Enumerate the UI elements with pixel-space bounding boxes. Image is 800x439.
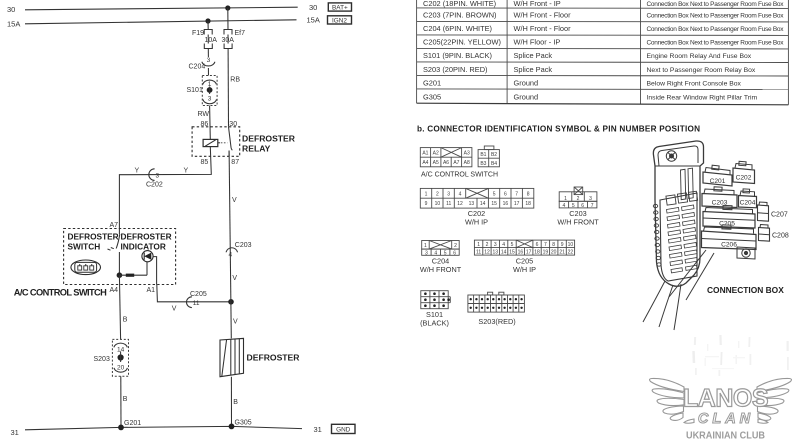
- svg-text:A5: A5: [433, 160, 439, 166]
- svg-text:87: 87: [231, 159, 239, 166]
- svg-text:4: 4: [228, 252, 232, 259]
- svg-text:A4: A4: [422, 160, 428, 166]
- svg-text:Ground: Ground: [514, 78, 539, 87]
- svg-text:6: 6: [581, 203, 584, 209]
- svg-text:31: 31: [314, 425, 322, 434]
- svg-text:4: 4: [563, 203, 566, 209]
- svg-text:2: 2: [577, 196, 580, 202]
- svg-text:13: 13: [469, 201, 475, 207]
- svg-text:S203(RED): S203(RED): [478, 317, 515, 326]
- svg-text:SWITCH: SWITCH: [68, 242, 101, 252]
- svg-text:30: 30: [7, 5, 15, 14]
- svg-text:Y: Y: [135, 168, 140, 175]
- svg-text:B1: B1: [480, 152, 486, 158]
- svg-text:C204 (6PIN. WHITE): C204 (6PIN. WHITE): [423, 24, 492, 33]
- svg-text:15: 15: [491, 201, 497, 207]
- svg-text:Ground: Ground: [514, 93, 539, 102]
- svg-text:16: 16: [518, 249, 524, 255]
- svg-text:S101: S101: [187, 87, 203, 94]
- svg-text:19: 19: [543, 249, 549, 255]
- svg-text:22: 22: [568, 249, 574, 255]
- svg-text:C201: C201: [710, 178, 726, 185]
- svg-text:CLAN: CLAN: [698, 411, 754, 427]
- svg-text:A2: A2: [433, 151, 439, 157]
- svg-text:30A: 30A: [222, 37, 235, 44]
- svg-text:C202: C202: [736, 175, 752, 182]
- svg-text:12: 12: [457, 201, 463, 207]
- svg-text:C207: C207: [771, 212, 788, 219]
- svg-text:V: V: [172, 306, 177, 313]
- svg-text:1: 1: [477, 242, 480, 248]
- svg-text:C208: C208: [772, 233, 789, 240]
- svg-text:C204: C204: [740, 200, 756, 207]
- svg-text:B: B: [233, 399, 238, 406]
- svg-text:(BLACK): (BLACK): [420, 318, 449, 327]
- svg-text:A/C CONTROL SWITCH: A/C CONTROL SWITCH: [14, 288, 107, 298]
- svg-text:G305: G305: [423, 93, 441, 102]
- svg-text:14: 14: [480, 201, 486, 207]
- svg-text:1: 1: [564, 196, 567, 202]
- svg-text:C204: C204: [189, 64, 206, 71]
- svg-text:CONNECTION BOX: CONNECTION BOX: [707, 285, 784, 295]
- svg-text:6: 6: [536, 242, 539, 248]
- svg-text:RB: RB: [230, 77, 240, 84]
- svg-text:Below Right Front Console Box: Below Right Front Console Box: [647, 80, 742, 87]
- svg-text:C205: C205: [190, 291, 207, 298]
- svg-text:11: 11: [476, 249, 481, 255]
- svg-text:16: 16: [503, 201, 509, 207]
- svg-text:Next to Passenger Room Relay B: Next to Passenger Room Relay Box: [647, 67, 756, 74]
- svg-text:2: 2: [454, 243, 457, 249]
- svg-text:DEFROSTER: DEFROSTER: [121, 232, 172, 242]
- svg-text:W/H FRONT: W/H FRONT: [420, 265, 462, 274]
- svg-text:G201: G201: [423, 78, 441, 87]
- svg-text:V: V: [232, 275, 237, 282]
- svg-text:S203 (20PIN. RED): S203 (20PIN. RED): [423, 65, 488, 74]
- svg-text:B2: B2: [491, 152, 497, 158]
- svg-text:2: 2: [486, 242, 489, 248]
- svg-text:IGN2: IGN2: [332, 17, 347, 24]
- svg-text:15: 15: [509, 249, 515, 255]
- svg-text:11: 11: [446, 201, 451, 207]
- svg-text:W/H Front - IP: W/H Front - IP: [514, 0, 561, 8]
- svg-text:31: 31: [11, 428, 19, 437]
- svg-text:S101 (9PIN. BLACK): S101 (9PIN. BLACK): [423, 51, 492, 60]
- svg-text:B: B: [123, 396, 128, 403]
- svg-text:A8: A8: [464, 160, 470, 166]
- svg-text:LANOS: LANOS: [683, 385, 768, 413]
- svg-text:1: 1: [425, 192, 428, 198]
- svg-text:G201: G201: [124, 420, 141, 427]
- svg-text:C202 (18PIN. WHITE): C202 (18PIN. WHITE): [423, 0, 496, 8]
- svg-text:C205(22PIN. YELLOW): C205(22PIN. YELLOW): [423, 38, 501, 47]
- svg-text:3: 3: [425, 250, 428, 256]
- svg-text:Splice Pack: Splice Pack: [514, 51, 553, 60]
- svg-text:Connection Box Next to Passeng: Connection Box Next to Passenger Room Fu…: [647, 1, 785, 8]
- svg-text:9: 9: [561, 242, 564, 248]
- svg-text:20: 20: [117, 365, 125, 372]
- svg-text:F19: F19: [192, 30, 204, 37]
- svg-text:b. CONNECTOR IDENTIFICATION SY: b. CONNECTOR IDENTIFICATION SYMBOL & PIN…: [417, 125, 700, 134]
- svg-text:8: 8: [527, 192, 530, 198]
- svg-text:4: 4: [502, 242, 505, 248]
- svg-text:W/H IP: W/H IP: [465, 217, 488, 226]
- svg-text:Splice Pack: Splice Pack: [514, 65, 553, 74]
- svg-text:20: 20: [551, 249, 557, 255]
- svg-text:A1: A1: [422, 151, 428, 157]
- svg-text:15A: 15A: [307, 15, 320, 24]
- svg-text:3: 3: [207, 57, 211, 64]
- svg-text:2: 2: [436, 192, 439, 198]
- svg-text:6: 6: [504, 192, 507, 198]
- svg-text:V: V: [233, 319, 238, 326]
- svg-text:21: 21: [559, 249, 565, 255]
- svg-text:W/H Front - Floor: W/H Front - Floor: [514, 24, 572, 33]
- svg-text:Ef7: Ef7: [235, 30, 246, 37]
- svg-text:Y: Y: [184, 168, 189, 175]
- svg-text:DEFROSTER: DEFROSTER: [68, 232, 119, 242]
- svg-text:17: 17: [514, 201, 520, 207]
- svg-text:Engine Room Relay And Fuse Box: Engine Room Relay And Fuse Box: [647, 53, 752, 60]
- svg-text:6: 6: [453, 250, 456, 256]
- svg-text:1: 1: [424, 243, 427, 249]
- svg-text:DEFROSTER: DEFROSTER: [247, 353, 301, 363]
- svg-text:B3: B3: [480, 161, 486, 167]
- svg-text:9: 9: [425, 201, 428, 207]
- svg-text:3: 3: [589, 196, 592, 202]
- svg-text:3: 3: [208, 96, 212, 103]
- svg-text:30: 30: [309, 3, 317, 12]
- svg-text:5: 5: [511, 242, 514, 248]
- svg-text:A3: A3: [464, 151, 470, 157]
- svg-text:B: B: [123, 317, 128, 324]
- svg-text:B4: B4: [491, 161, 497, 167]
- svg-text:C206: C206: [721, 242, 737, 249]
- svg-text:11: 11: [193, 300, 200, 307]
- svg-text:C203: C203: [235, 242, 252, 249]
- svg-text:8: 8: [552, 242, 555, 248]
- svg-text:C203 (7PIN. BROWN): C203 (7PIN. BROWN): [423, 11, 497, 20]
- svg-text:7: 7: [515, 192, 518, 198]
- svg-text:5: 5: [572, 203, 575, 209]
- svg-text:RELAY: RELAY: [242, 144, 271, 154]
- svg-text:10A: 10A: [205, 37, 218, 44]
- svg-text:85: 85: [201, 159, 209, 166]
- svg-text:13: 13: [493, 249, 499, 255]
- svg-text:18: 18: [525, 201, 531, 207]
- svg-text:Inside Rear Window Right Pilla: Inside Rear Window Right Pillar Trim: [647, 95, 758, 102]
- svg-text:4: 4: [434, 250, 437, 256]
- svg-text:A7: A7: [453, 160, 459, 166]
- svg-text:W/H IP: W/H IP: [513, 265, 536, 274]
- svg-text:A4: A4: [110, 287, 119, 294]
- svg-text:12: 12: [484, 249, 490, 255]
- svg-text:5: 5: [493, 192, 496, 198]
- svg-text:GND: GND: [336, 427, 351, 434]
- svg-text:Connection Box Next to Passeng: Connection Box Next to Passenger Room Fu…: [647, 40, 785, 47]
- svg-text:17: 17: [526, 249, 532, 255]
- svg-text:15A: 15A: [7, 19, 20, 28]
- svg-text:4: 4: [459, 192, 462, 198]
- svg-text:W/H FRONT: W/H FRONT: [557, 217, 599, 226]
- svg-text:RW: RW: [198, 111, 210, 118]
- svg-text:BAT+: BAT+: [332, 4, 348, 11]
- svg-text:10: 10: [568, 242, 574, 248]
- svg-text:10: 10: [435, 201, 441, 207]
- svg-text:A1: A1: [147, 287, 156, 294]
- svg-text:3: 3: [156, 173, 160, 180]
- svg-text:V: V: [232, 197, 237, 204]
- svg-text:DEFROSTER: DEFROSTER: [242, 134, 296, 144]
- svg-text:3: 3: [494, 242, 497, 248]
- svg-text:C202: C202: [146, 182, 163, 189]
- svg-text:A/C CONTROL SWITCH: A/C CONTROL SWITCH: [421, 172, 498, 179]
- svg-text:UKRAINIAN CLUB: UKRAINIAN CLUB: [686, 431, 765, 439]
- svg-text:7: 7: [544, 242, 547, 248]
- svg-text:18: 18: [534, 249, 540, 255]
- svg-text:Connection Box Next to Passeng: Connection Box Next to Passenger Room Fu…: [647, 13, 785, 20]
- svg-text:Connection Box Next to Passeng: Connection Box Next to Passenger Room Fu…: [647, 26, 785, 33]
- svg-text:A6: A6: [443, 160, 449, 166]
- svg-text:7: 7: [591, 203, 594, 209]
- svg-text:3: 3: [447, 192, 450, 198]
- svg-text:W/H Front - Floor: W/H Front - Floor: [514, 11, 572, 20]
- svg-text:S203: S203: [94, 356, 110, 363]
- svg-text:14: 14: [501, 249, 507, 255]
- svg-text:G305: G305: [235, 420, 252, 427]
- svg-text:INDICATOR: INDICATOR: [121, 242, 166, 252]
- svg-text:5: 5: [444, 250, 447, 256]
- svg-text:W/H Floor - IP: W/H Floor - IP: [514, 38, 561, 47]
